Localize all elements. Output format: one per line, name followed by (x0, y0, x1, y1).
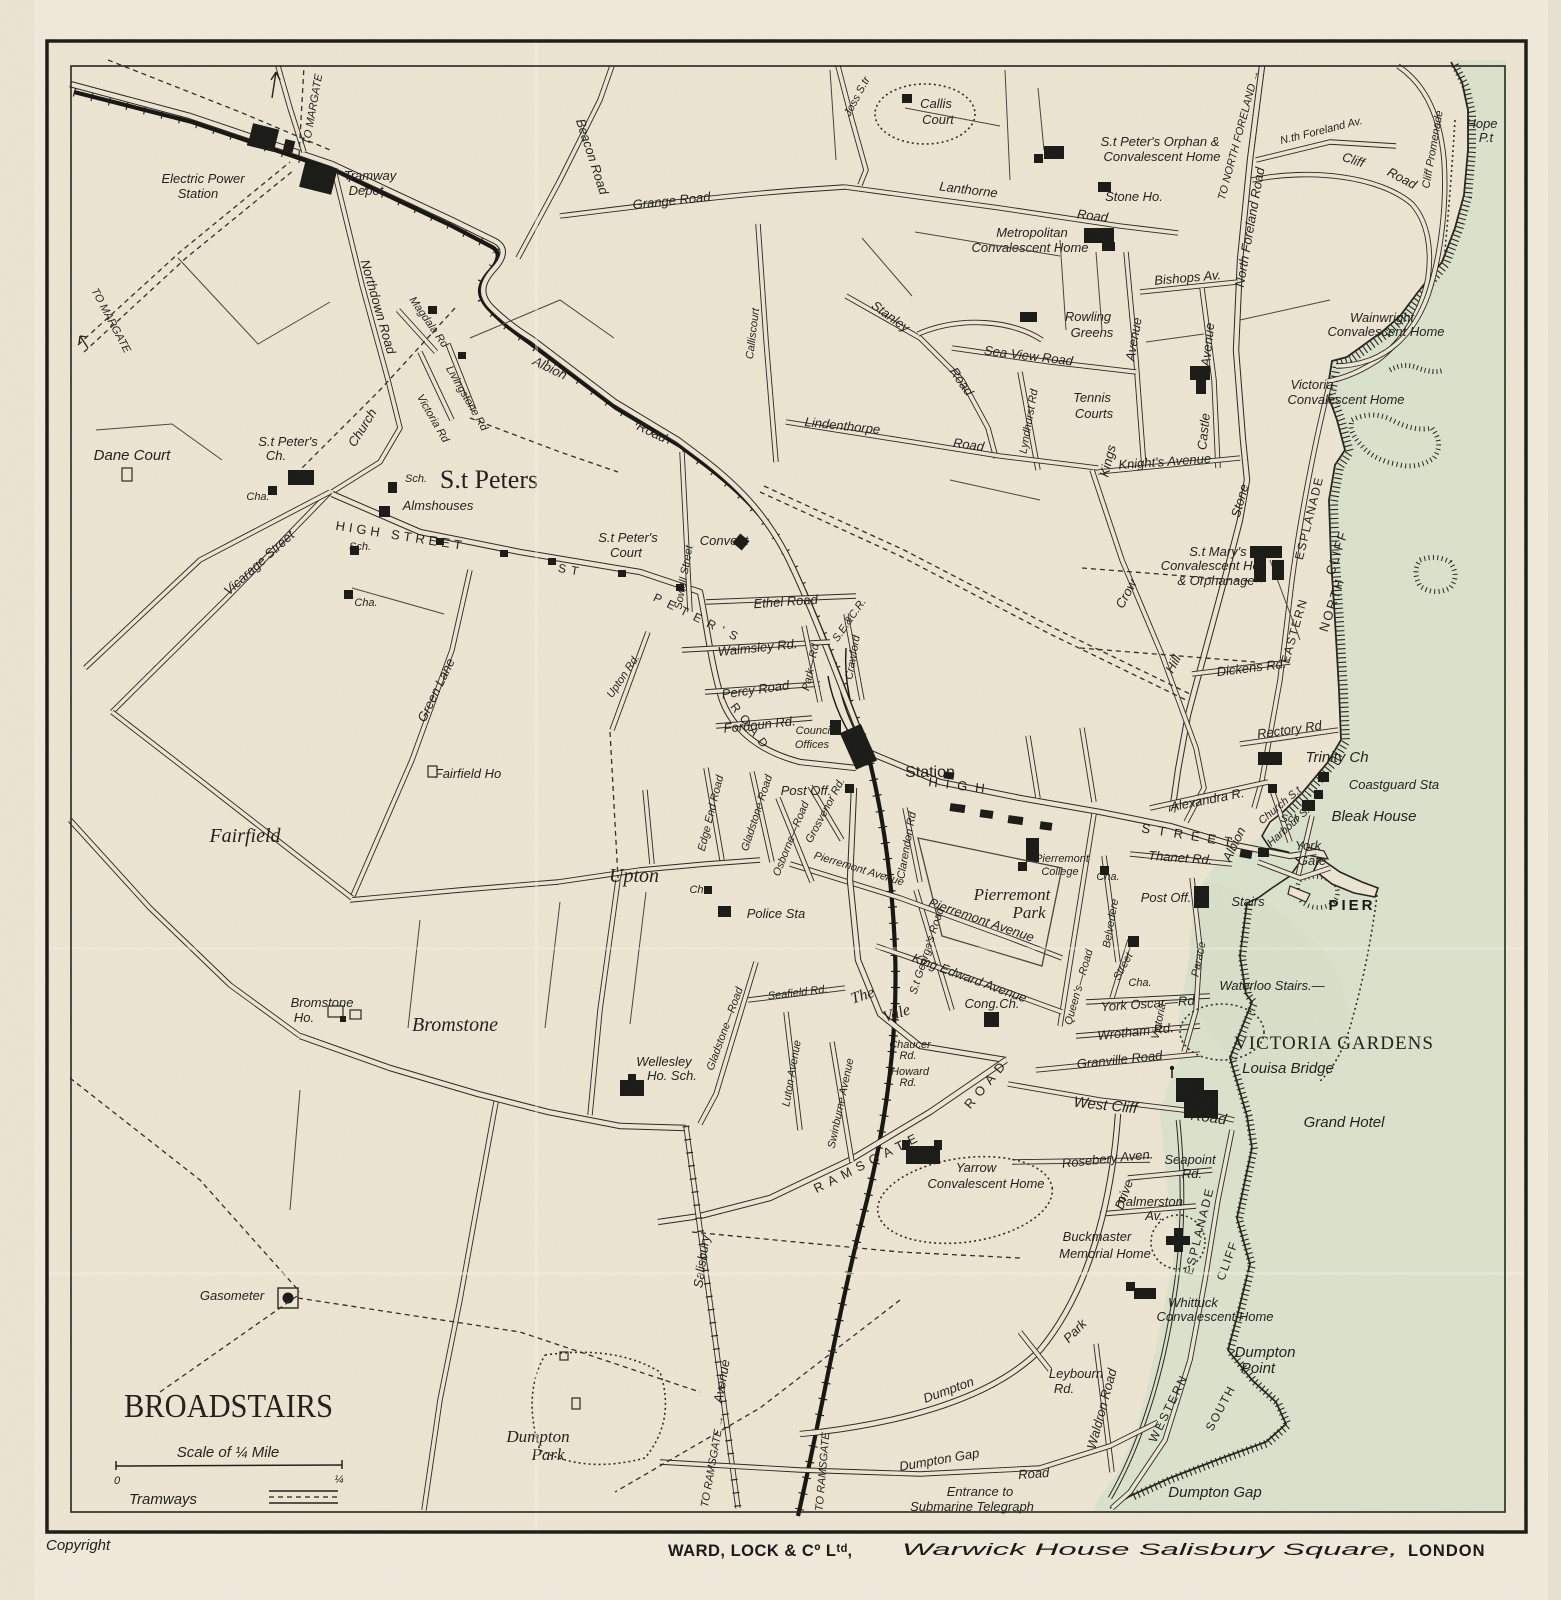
svg-text:LONDON: LONDON (1408, 1542, 1486, 1560)
svg-text:Warwick House Salisbury Squar: Warwick House Salisbury Square, (902, 1541, 1398, 1559)
svg-text:Copyright: Copyright (46, 1537, 111, 1554)
svg-text:WARD, LOCK & Cº Lᵗᵈ,: WARD, LOCK & Cº Lᵗᵈ, (668, 1542, 853, 1560)
